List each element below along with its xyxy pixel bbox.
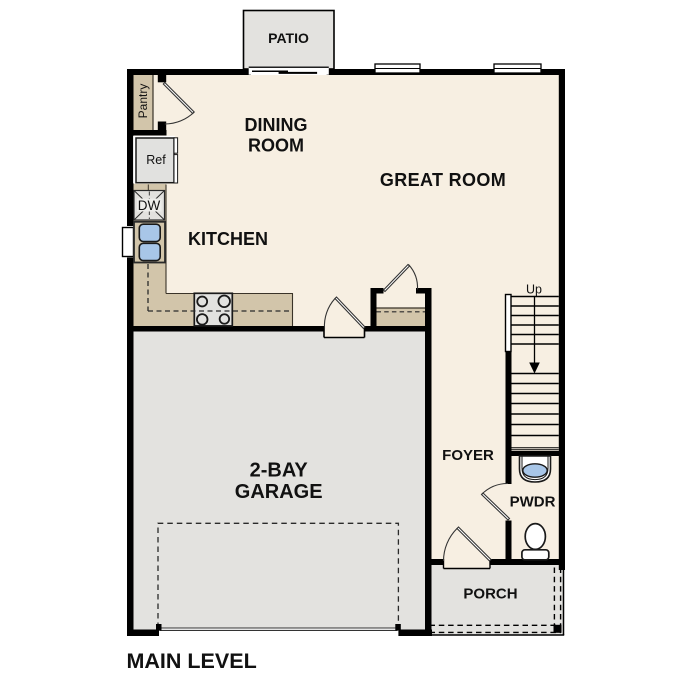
svg-text:GARAGE: GARAGE [235, 481, 323, 503]
svg-text:DINING: DINING [245, 115, 308, 135]
svg-text:Pantry: Pantry [136, 84, 150, 119]
svg-text:PORCH: PORCH [463, 586, 517, 603]
svg-text:Up: Up [526, 283, 542, 297]
svg-text:KITCHEN: KITCHEN [188, 229, 268, 249]
svg-text:2-BAY: 2-BAY [250, 460, 309, 482]
svg-text:PATIO: PATIO [268, 30, 309, 46]
svg-text:GREAT ROOM: GREAT ROOM [380, 170, 506, 190]
svg-text:FOYER: FOYER [442, 447, 494, 464]
svg-text:DW: DW [138, 198, 161, 213]
svg-text:MAIN LEVEL: MAIN LEVEL [127, 649, 257, 673]
svg-text:PWDR: PWDR [510, 494, 556, 511]
svg-text:ROOM: ROOM [248, 136, 304, 156]
svg-text:Ref: Ref [146, 153, 166, 167]
